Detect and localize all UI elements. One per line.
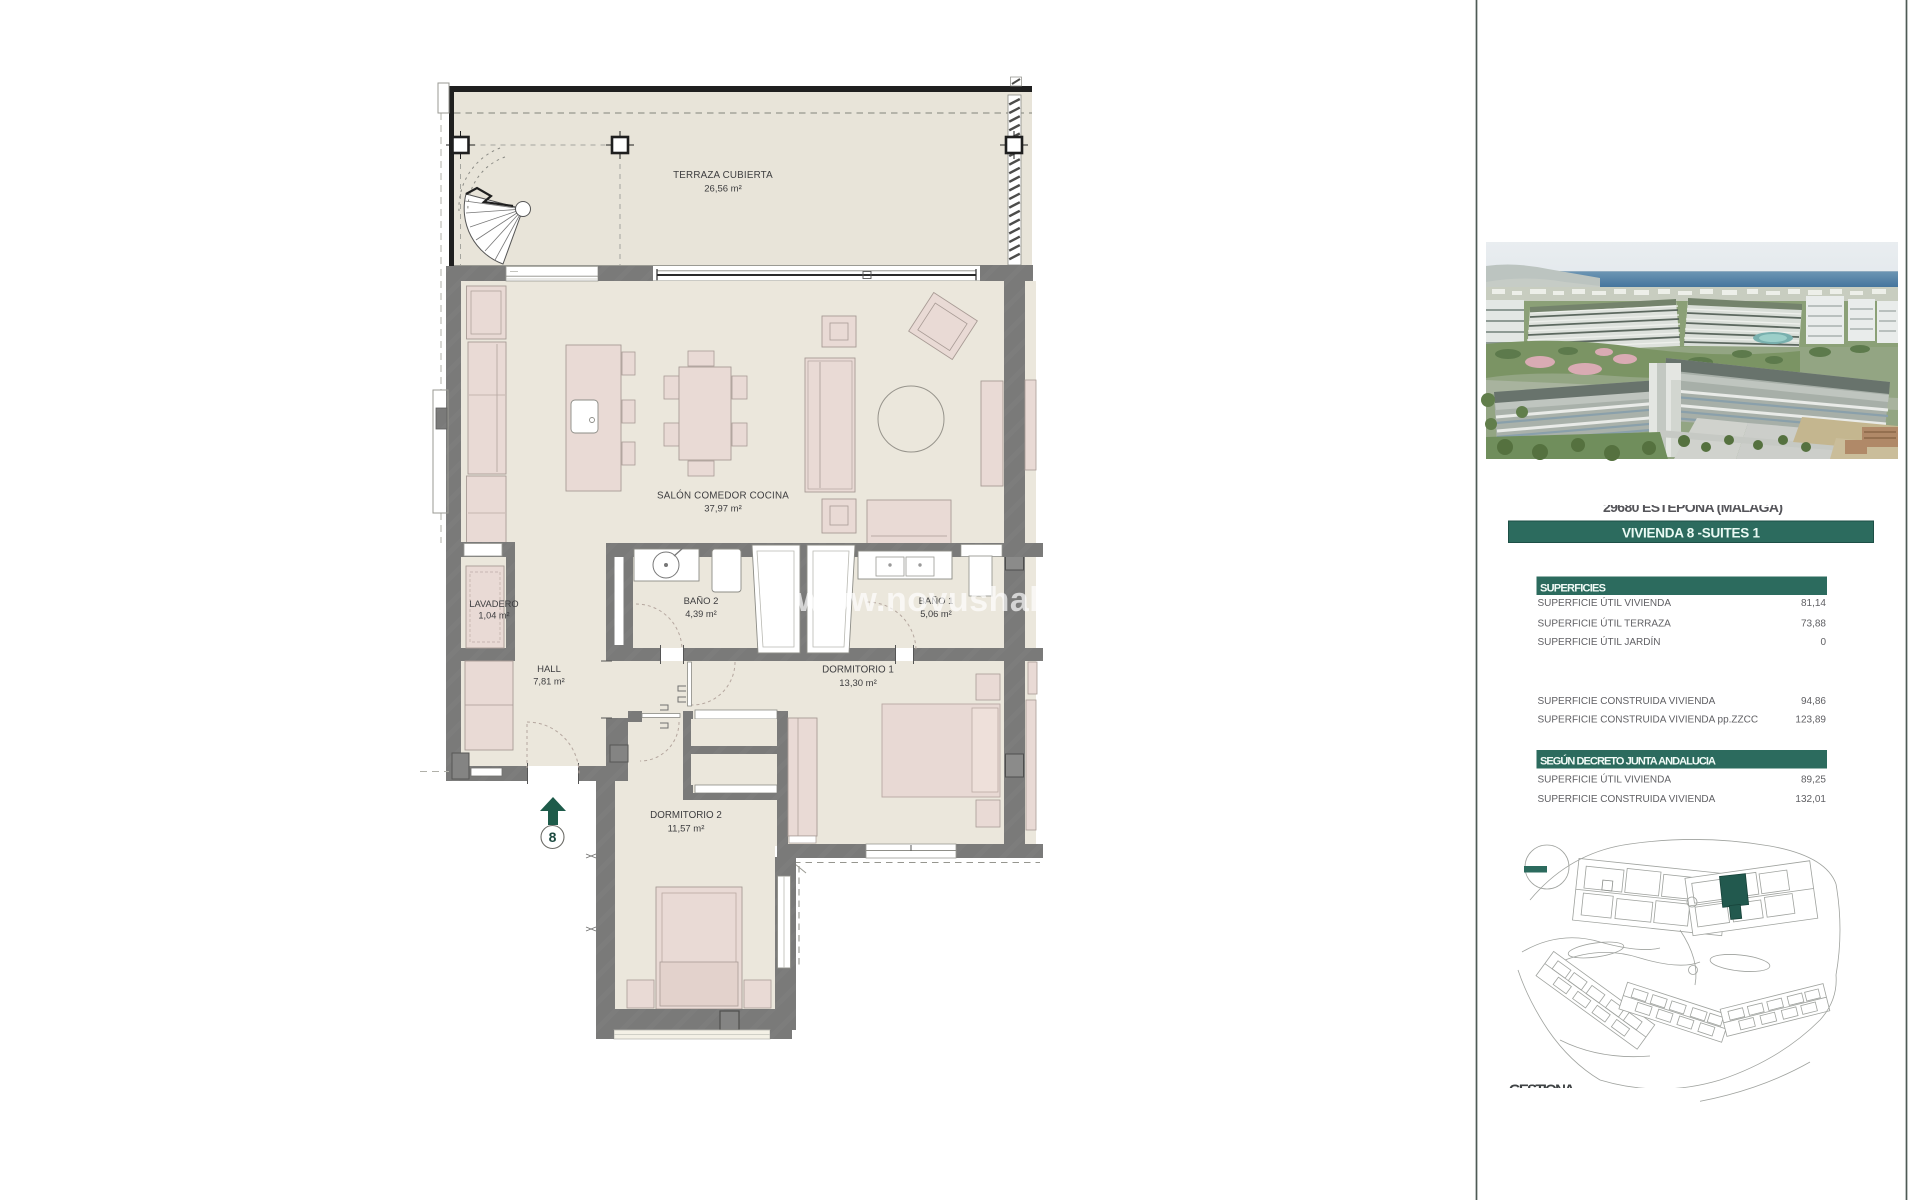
svg-text:SUPERFICIE ÚTIL VIVIENDA: SUPERFICIE ÚTIL VIVIENDA xyxy=(1538,596,1672,609)
svg-text:SUPERFICIE CONSTRUIDA VIVIENDA: SUPERFICIE CONSTRUIDA VIVIENDA xyxy=(1538,696,1716,707)
svg-text:73,88: 73,88 xyxy=(1801,619,1826,630)
svg-text:HALL: HALL xyxy=(537,664,561,675)
svg-text:0: 0 xyxy=(1820,637,1826,648)
svg-text:4,39 m²: 4,39 m² xyxy=(685,609,717,619)
svg-text:SUPERFICIE CONSTRUIDA VIVIENDA: SUPERFICIE CONSTRUIDA VIVIENDA pp.ZZCC xyxy=(1538,715,1759,726)
svg-text:89,25: 89,25 xyxy=(1801,775,1826,786)
svg-text:VIVIENDA 8 -SUITES 1: VIVIENDA 8 -SUITES 1 xyxy=(1622,526,1760,541)
svg-text:81,14: 81,14 xyxy=(1801,598,1826,609)
svg-text:SUPERFICIES: SUPERFICIES xyxy=(1540,583,1606,595)
svg-text:TERRAZA CUBIERTA: TERRAZA CUBIERTA xyxy=(673,170,773,181)
svg-text:132,01: 132,01 xyxy=(1795,794,1826,805)
svg-text:DORMITORIO 2: DORMITORIO 2 xyxy=(650,810,722,821)
svg-text:26,56 m²: 26,56 m² xyxy=(704,184,742,195)
svg-text:SEGÚN DECRETO JUNTA ANDALUCIA: SEGÚN DECRETO JUNTA ANDALUCIA xyxy=(1540,755,1716,768)
svg-text:SUPERFICIE CONSTRUIDA VIVIENDA: SUPERFICIE CONSTRUIDA VIVIENDA xyxy=(1538,794,1716,805)
svg-text:DORMITORIO 1: DORMITORIO 1 xyxy=(822,665,894,676)
svg-text:13,30 m²: 13,30 m² xyxy=(839,678,877,689)
svg-text:LAVADERO: LAVADERO xyxy=(469,599,518,609)
svg-text:SUPERFICIE ÚTIL TERRAZA: SUPERFICIE ÚTIL TERRAZA xyxy=(1538,617,1672,630)
svg-text:SUPERFICIE ÚTIL JARDÍN: SUPERFICIE ÚTIL JARDÍN xyxy=(1538,635,1661,648)
svg-text:1,04 m²: 1,04 m² xyxy=(478,611,509,621)
svg-text:BAÑO 2: BAÑO 2 xyxy=(684,596,719,607)
svg-text:7,81 m²: 7,81 m² xyxy=(533,677,565,687)
svg-text:8: 8 xyxy=(549,829,557,845)
svg-text:37,97 m²: 37,97 m² xyxy=(704,504,742,515)
svg-text:123,89: 123,89 xyxy=(1795,715,1826,726)
svg-text:SALÓN COMEDOR COCINA: SALÓN COMEDOR COCINA xyxy=(657,491,789,502)
svg-text:www.novushabitat: www.novushabitat xyxy=(795,581,1103,619)
svg-text:94,86: 94,86 xyxy=(1801,696,1826,707)
svg-text:SUPERFICIE ÚTIL VIVIENDA: SUPERFICIE ÚTIL VIVIENDA xyxy=(1538,773,1672,786)
svg-text:11,57 m²: 11,57 m² xyxy=(668,824,705,835)
